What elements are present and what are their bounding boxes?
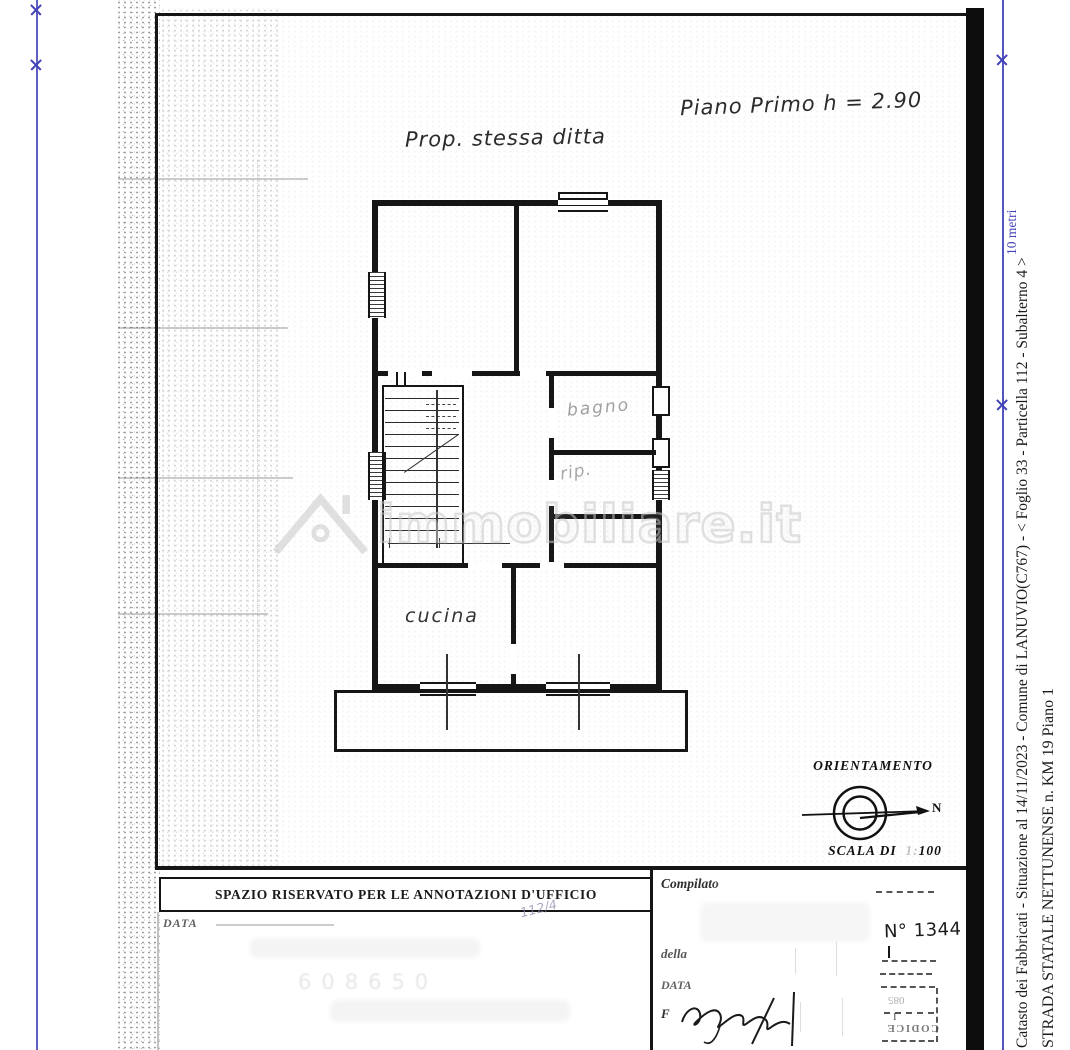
- noise-hline: [118, 178, 308, 180]
- stair-tread: [385, 470, 459, 471]
- noise-hline: [118, 327, 288, 329]
- left-ruler-tick: [29, 3, 43, 17]
- wall-rip-bottom: [554, 514, 656, 519]
- stair-tread: [385, 530, 459, 531]
- orientation-title: ORIENTAMENTO: [798, 758, 948, 774]
- ruler-scale-label: 10 metri: [1004, 60, 1022, 405]
- window-left-upper: [368, 272, 386, 318]
- scan-smudge: [250, 938, 480, 958]
- margin-text-line2: STRADA STATALE NETTUNENSE n. KM 19 Piano…: [1040, 0, 1066, 1048]
- ownership-note: Prop. stessa ditta: [405, 124, 606, 152]
- wall-bagno-bottom: [554, 450, 656, 455]
- noise-vline-dotted: [257, 160, 258, 740]
- firma-label: F: [661, 1006, 670, 1022]
- balcony-outline: [334, 690, 688, 752]
- stair-tread: [385, 446, 459, 447]
- stair-dashed-return: [426, 416, 456, 417]
- entry-door-mark: [396, 372, 398, 386]
- scan-edge-black-bar: [966, 8, 984, 1050]
- annotations-box: SPAZIO RISERVATO PER LE ANNOTAZIONI D'UF…: [159, 877, 653, 912]
- window-top-jamb: [606, 192, 608, 200]
- window-right-lower: [652, 470, 670, 500]
- window-axis-line: [446, 654, 448, 730]
- door-gap-bagno: [548, 408, 555, 438]
- window-right-upper: [652, 386, 670, 416]
- door-gap: [432, 370, 472, 377]
- left-ruler-line: [36, 0, 38, 1050]
- fade-overlay: [706, 872, 836, 894]
- footer-divider: [650, 868, 653, 1050]
- window-top-jamb: [558, 192, 560, 200]
- door-gap: [510, 644, 517, 674]
- stair-section-line: [388, 543, 510, 544]
- north-label: N: [932, 800, 941, 816]
- scan-noise-band-outer: [116, 0, 160, 1050]
- left-ruler-tick: [29, 58, 43, 72]
- codice-mark-i: I: [893, 1010, 897, 1022]
- wall-between-top-rooms: [514, 205, 519, 371]
- stair-tread: [385, 434, 459, 435]
- faint-mark: [842, 998, 843, 1036]
- faint-stamp-number: 608650: [298, 970, 438, 994]
- stair-tread: [385, 398, 459, 399]
- dashed-fill-line: [880, 973, 932, 975]
- scale-value: 100: [919, 843, 942, 858]
- window-top-head-line: [558, 192, 608, 194]
- door-gap: [520, 370, 546, 377]
- faint-mark: [836, 942, 837, 976]
- protocol-tick: [888, 946, 890, 958]
- stair-tread: [385, 506, 459, 507]
- entry-door-mark: [404, 372, 406, 386]
- codice-mark-digits: 085: [888, 994, 905, 1006]
- door-gap: [468, 562, 502, 569]
- faint-mark: [800, 1002, 801, 1032]
- noise-hline: [118, 477, 293, 479]
- stair-tread: [385, 518, 459, 519]
- dashed-fill-line: [876, 891, 934, 893]
- scale-prefix: SCALA DI: [828, 843, 896, 858]
- annotations-title: SPAZIO RISERVATO PER LE ANNOTAZIONI D'UF…: [215, 887, 597, 903]
- stair-tread: [385, 410, 459, 411]
- scale-ratio-faint: 1:: [905, 843, 918, 858]
- codice-stamp: CODICE: [886, 1022, 939, 1034]
- frame-left-border: [155, 13, 158, 870]
- stair-dashed-return: [426, 404, 456, 405]
- room-label-cucina: cucina: [405, 605, 479, 627]
- door-gap-rip: [548, 480, 555, 506]
- frame-top-border: [155, 13, 968, 16]
- window-axis-line: [578, 654, 580, 730]
- window-top: [558, 198, 608, 212]
- dashed-fill-line: [881, 986, 935, 988]
- data-label: DATA: [163, 916, 198, 931]
- frame-bottom-border: [155, 866, 968, 870]
- stair-direction-line: [436, 390, 438, 548]
- dashed-fill-line: [882, 960, 936, 962]
- della-label: della: [661, 946, 687, 962]
- dashed-fill-line: [884, 1012, 934, 1014]
- frame-left-border-faint: [157, 912, 159, 1050]
- scale-label: SCALA DI 1:100: [800, 843, 970, 859]
- scan-smudge: [700, 902, 870, 942]
- stair-section-tick: [389, 538, 390, 548]
- stair-tread: [385, 482, 459, 483]
- stair-tread: [385, 494, 459, 495]
- scan-smudge: [330, 1000, 570, 1022]
- stair-dashed-return: [426, 428, 456, 429]
- data-fill-line: [216, 924, 334, 926]
- protocol-number: N° 1344: [884, 919, 962, 943]
- door-gap: [540, 562, 564, 569]
- staircase-enclosure: [382, 385, 464, 565]
- wall-hall-bagno: [549, 376, 554, 566]
- faint-mark: [795, 948, 796, 974]
- dashed-fill-line: [882, 1040, 934, 1042]
- compass-icon: [802, 778, 942, 848]
- stair-tread: [385, 422, 459, 423]
- noise-hline: [118, 613, 268, 615]
- scanned-cadastral-plan-page: Piano Primo h = 2.90 Prop. stessa ditta …: [0, 0, 1070, 1050]
- signature-scrawl: [676, 990, 836, 1048]
- stair-section-tick: [439, 538, 440, 548]
